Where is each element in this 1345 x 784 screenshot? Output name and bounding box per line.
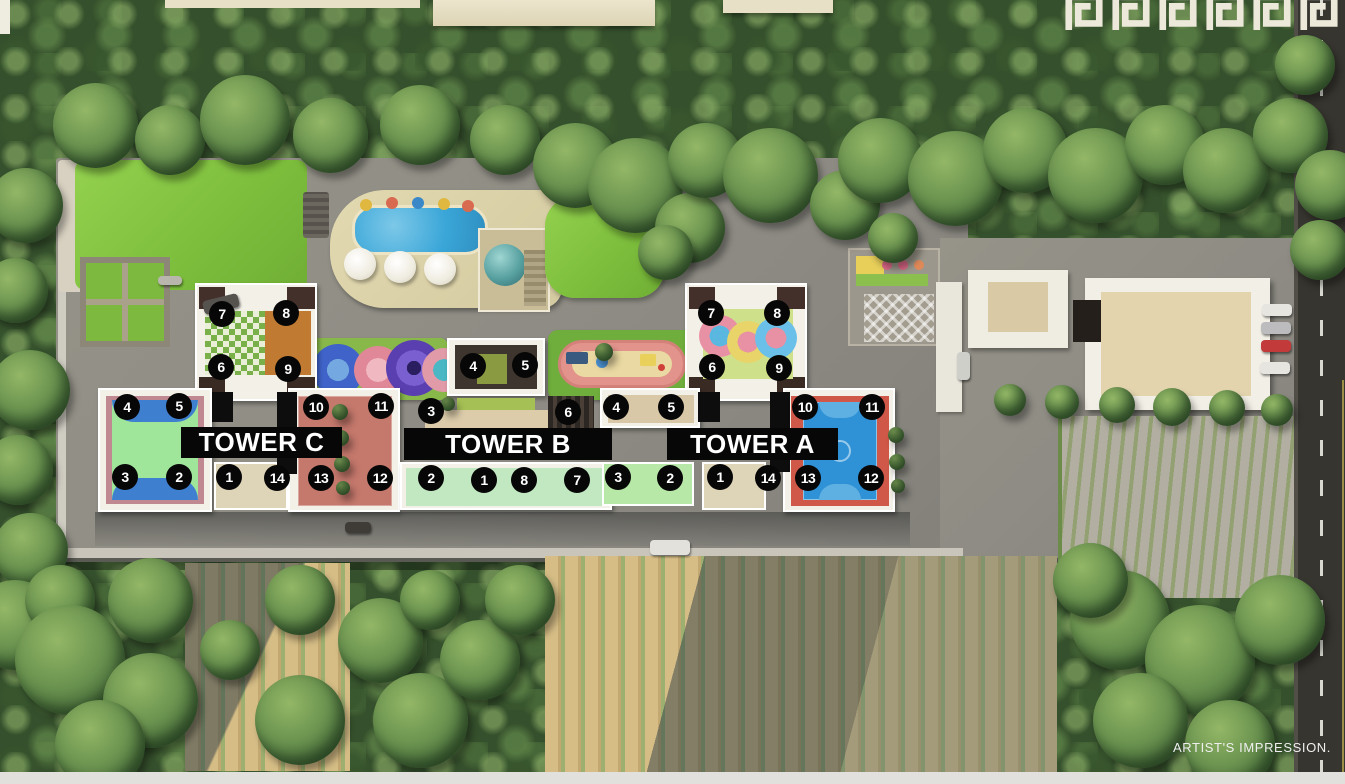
greek-key-tile [1110, 0, 1152, 30]
amenity-marker-tower-c-9: 9 [275, 356, 301, 382]
amenity-marker-tower-b-3: 3 [418, 398, 444, 424]
amenity-marker-tower-a-9: 9 [766, 355, 792, 381]
amenity-marker-tower-b-6: 6 [555, 399, 581, 425]
credit-text: ARTIST'S IMPRESSION. [1173, 740, 1331, 755]
tower-label-tower-b: TOWER B [404, 428, 612, 460]
amenity-marker-tower-a-13: 13 [795, 465, 821, 491]
greek-key-border [1063, 0, 1345, 30]
annotation-layer: TOWER C7869451011321141312TOWER B4536218… [0, 0, 1345, 784]
site-plan-canvas: TOWER C7869451011321141312TOWER B4536218… [0, 0, 1345, 784]
amenity-marker-tower-c-12: 12 [367, 465, 393, 491]
amenity-marker-tower-b-8: 8 [511, 467, 537, 493]
amenity-marker-tower-b-5: 5 [512, 352, 538, 378]
amenity-marker-tower-a-8: 8 [764, 300, 790, 326]
amenity-marker-tower-a-14: 14 [755, 465, 781, 491]
greek-key-tile [1157, 0, 1199, 30]
amenity-marker-tower-a-10: 10 [792, 394, 818, 420]
amenity-marker-tower-b-1: 1 [471, 467, 497, 493]
greek-key-tile [1251, 0, 1293, 30]
amenity-marker-tower-b-4: 4 [460, 353, 486, 379]
tower-label-tower-c: TOWER C [181, 427, 342, 458]
amenity-marker-tower-c-4: 4 [114, 394, 140, 420]
amenity-marker-tower-a-2: 2 [657, 465, 683, 491]
amenity-marker-tower-c-8: 8 [273, 300, 299, 326]
amenity-marker-tower-b-2: 2 [418, 465, 444, 491]
amenity-marker-tower-c-6: 6 [208, 354, 234, 380]
greek-key-tile [1063, 0, 1105, 30]
amenity-marker-tower-c-11: 11 [368, 393, 394, 419]
amenity-marker-tower-c-7: 7 [209, 301, 235, 327]
image-bottom-strip [0, 772, 1345, 784]
amenity-marker-tower-a-11: 11 [859, 394, 885, 420]
amenity-marker-tower-c-2: 2 [166, 464, 192, 490]
amenity-marker-tower-a-6: 6 [699, 354, 725, 380]
amenity-marker-tower-c-14: 14 [264, 465, 290, 491]
amenity-marker-tower-c-1: 1 [216, 464, 242, 490]
amenity-marker-tower-a-7: 7 [698, 300, 724, 326]
amenity-marker-tower-a-3: 3 [605, 464, 631, 490]
amenity-marker-tower-a-4: 4 [603, 394, 629, 420]
greek-key-tile [1298, 0, 1340, 30]
amenity-marker-tower-c-13: 13 [308, 465, 334, 491]
amenity-marker-tower-c-10: 10 [303, 394, 329, 420]
amenity-marker-tower-a-5: 5 [658, 394, 684, 420]
amenity-marker-tower-a-12: 12 [858, 465, 884, 491]
amenity-marker-tower-c-3: 3 [112, 464, 138, 490]
amenity-marker-tower-c-5: 5 [166, 393, 192, 419]
greek-key-tile [1204, 0, 1246, 30]
tower-label-tower-a: TOWER A [667, 428, 838, 460]
amenity-marker-tower-b-7: 7 [564, 467, 590, 493]
amenity-marker-tower-a-1: 1 [707, 464, 733, 490]
